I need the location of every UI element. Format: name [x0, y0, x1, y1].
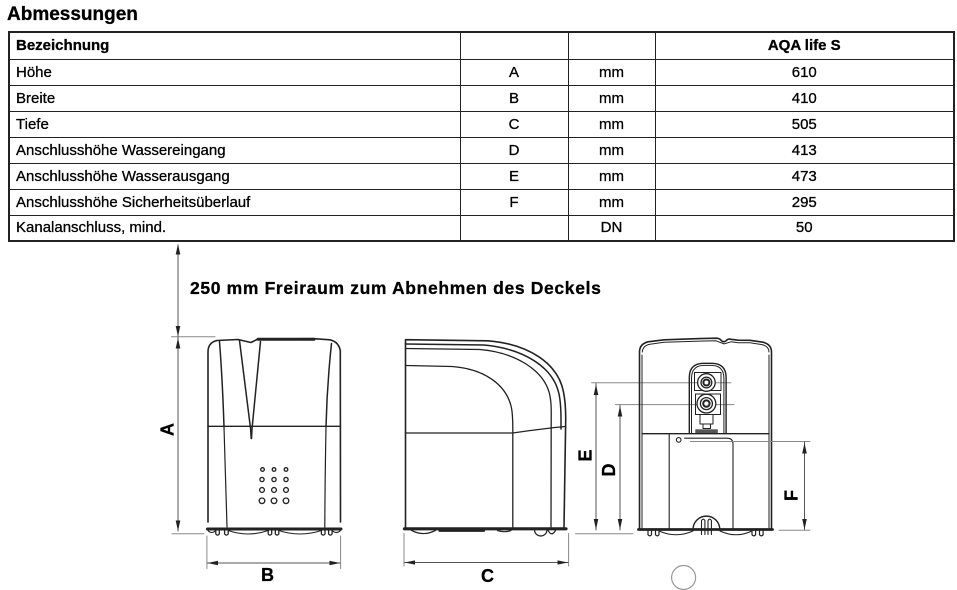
svg-text:A: A [158, 423, 178, 436]
svg-text:E: E [576, 449, 596, 461]
svg-text:250 mm Freiraum zum Abnehmen d: 250 mm Freiraum zum Abnehmen des Deckels [190, 278, 601, 298]
svg-text:B: B [261, 565, 274, 585]
svg-text:F: F [782, 490, 802, 501]
svg-text:C: C [481, 566, 494, 586]
svg-text:D: D [599, 464, 619, 477]
